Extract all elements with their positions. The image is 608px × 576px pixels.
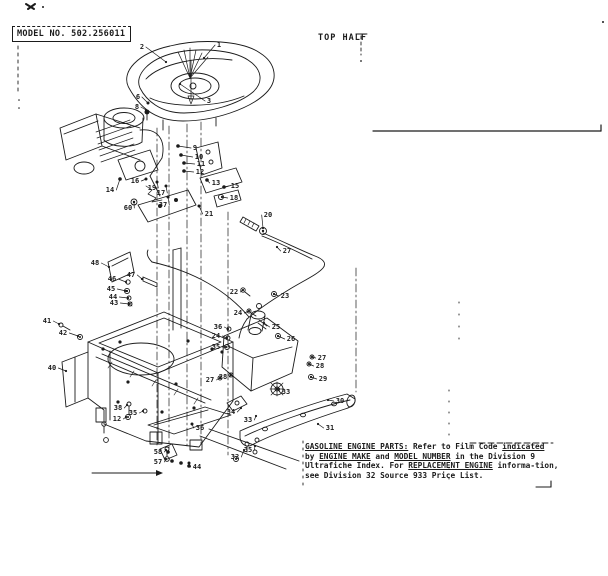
footer-text-segment: and [371, 452, 394, 461]
footer-text-segment: MODEL NUMBER [394, 452, 450, 461]
control-rod [147, 217, 324, 338]
callout-label: 25 [272, 323, 280, 331]
footer-text-segment: Refer to Film Code [408, 442, 502, 451]
callout-target-dot [165, 458, 167, 460]
callout-label: 31 [326, 424, 334, 432]
footer-text-segment: GASOLINE ENGINE PARTS: [305, 442, 408, 451]
callout-label: 35 [129, 409, 137, 417]
callout-target-dot [248, 310, 250, 312]
callout-target-dot [177, 145, 179, 147]
callout-target-dot [142, 410, 144, 412]
footer-text-segment: Ultrafiche Index. For [305, 461, 408, 470]
callout-target-dot [141, 278, 143, 280]
callout-label: 26 [287, 335, 295, 343]
callout-label: 33 [244, 416, 252, 424]
callout-label: 45 [107, 285, 115, 293]
callout-label: 27 [206, 376, 214, 384]
callout-label: 29 [319, 375, 327, 383]
callout-target-dot [242, 289, 244, 291]
footer-line: GASOLINE ENGINE PARTS: Refer to Film Cod… [305, 442, 559, 452]
callout-target-dot [125, 281, 127, 283]
callout-label: 2 [140, 43, 144, 51]
callout-label: 11 [197, 160, 205, 168]
callout-target-dot [273, 293, 275, 295]
callout-target-dot [255, 415, 257, 417]
callout-label: 22 [230, 288, 238, 296]
callout-label: 28 [316, 362, 324, 370]
callout-label: 32 [231, 453, 239, 461]
callout-target-dot [133, 201, 135, 203]
callout-target-dot [165, 449, 167, 451]
callout-target-dot [221, 196, 223, 198]
callout-leader [118, 279, 126, 282]
callout-label: 37 [159, 201, 167, 209]
callout-target-dot [156, 181, 158, 183]
callout-label: 36 [196, 424, 204, 432]
callout-target-dot [230, 374, 232, 376]
callout-target-dot [311, 356, 313, 358]
pan-hardware [108, 248, 181, 330]
callout-label: 8 [135, 103, 139, 111]
callout-target-dot [65, 370, 67, 372]
callout-label: 35 [212, 343, 220, 351]
footer-line: Ultrafiche Index. For REPLACEMENT ENGINE… [305, 461, 559, 471]
callout-label: 18 [230, 194, 238, 202]
exploded-parts-diagram: 1236891011121315181619173714602120272223… [0, 0, 608, 576]
callout-label: 46 [108, 275, 116, 283]
footer-line: see Division 32 Source 933 Price List. [305, 471, 559, 481]
callout-target-dot [223, 186, 225, 188]
callout-target-dot [191, 423, 193, 425]
callout-target-dot [128, 303, 130, 305]
callout-target-dot [225, 346, 227, 348]
footer-text-segment: see Division 32 Source 933 Price List. [305, 471, 483, 480]
callout-target-dot [119, 178, 121, 180]
callout-label: 20 [264, 211, 272, 219]
callout-label: 58 [154, 448, 162, 456]
callout-label: 12 [196, 168, 204, 176]
callout-label: 9 [193, 144, 197, 152]
footer-text-segment: informa-tion, [493, 461, 559, 470]
callout-label: 13 [212, 179, 220, 187]
callout-label: 19 [148, 184, 156, 192]
callout-label: 3 [207, 97, 211, 105]
callout-label: 43 [110, 299, 118, 307]
callout-target-dot [179, 83, 181, 85]
callout-target-dot [145, 178, 147, 180]
callout-target-dot [58, 323, 60, 325]
callout-target-dot [262, 227, 264, 229]
callout-label: 44 [193, 463, 201, 471]
callout-target-dot [145, 109, 147, 111]
callout-target-dot [165, 185, 167, 187]
callout-label: 24 [212, 332, 220, 340]
engine-cover [127, 42, 274, 130]
callout-label: 48 [91, 259, 99, 267]
callout-label: 6 [136, 93, 140, 101]
callout-leader [184, 163, 195, 164]
callout-label: 12 [113, 415, 121, 423]
footer-text-segment: indicated [502, 442, 544, 451]
footer-note: GASOLINE ENGINE PARTS: Refer to Film Cod… [305, 442, 559, 480]
callout-target-dot [276, 246, 278, 248]
callout-label: 21 [205, 210, 213, 218]
callout-label: 41 [43, 317, 51, 325]
callout-target-dot [308, 363, 310, 365]
callout-target-dot [226, 337, 228, 339]
callout-label: 57 [154, 458, 162, 466]
callout-target-dot [327, 399, 329, 401]
callout-label: 38 [114, 404, 122, 412]
callout-label: 17 [157, 189, 165, 197]
callout-target-dot [203, 57, 205, 59]
callout-leader [180, 84, 205, 101]
callout-target-dot [125, 416, 127, 418]
callout-label: 24 [234, 309, 242, 317]
callout-target-dot [317, 423, 319, 425]
callout-target-dot [278, 388, 280, 390]
callout-leader [178, 146, 191, 148]
callout-target-dot [206, 179, 208, 181]
callout-label: 40 [48, 364, 56, 372]
callout-target-dot [167, 196, 169, 198]
footer-text-segment: REPLACEMENT ENGINE [408, 461, 493, 470]
cover-spring [178, 48, 208, 104]
callout-target-dot [188, 462, 190, 464]
callout-leader [116, 179, 120, 190]
callout-leader [204, 45, 215, 58]
callout-target-dot [183, 170, 185, 172]
callout-target-dot [108, 266, 110, 268]
callout-label: 27 [283, 247, 291, 255]
footer-text-segment: in the Division 9 [451, 452, 536, 461]
callout-label: 60 [124, 204, 132, 212]
callout-target-dot [310, 376, 312, 378]
callout-target-dot [147, 102, 149, 104]
callout-target-dot [165, 61, 167, 63]
footer-line: by ENGINE MAKE and MODEL NUMBER in the D… [305, 452, 559, 462]
callout-label: 36 [214, 323, 222, 331]
callout-target-dot [227, 328, 229, 330]
callout-target-dot [126, 404, 128, 406]
callout-target-dot [77, 335, 79, 337]
callout-label: 47 [127, 271, 135, 279]
callout-target-dot [183, 162, 185, 164]
callout-leader [101, 263, 109, 267]
callout-label: 42 [59, 329, 67, 337]
callout-target-dot [263, 322, 265, 324]
callout-label: 14 [106, 186, 114, 194]
assembly-center-lines [157, 122, 356, 455]
callout-label: 35 [244, 446, 252, 454]
footer-text-segment: by [305, 452, 319, 461]
callout-label: 30 [336, 397, 344, 405]
parts-manual-page: MODEL NO. 502.256011 TOP HALF [0, 0, 608, 576]
callout-label: 23 [281, 292, 289, 300]
callout-target-dot [240, 407, 242, 409]
callout-leader [119, 297, 128, 298]
callout-target-dot [180, 154, 182, 156]
callout-label: 15 [231, 182, 239, 190]
callout-label: 16 [131, 177, 139, 185]
callout-target-dot [277, 335, 279, 337]
callout-target-dot [254, 445, 256, 447]
callout-label: 33 [282, 388, 290, 396]
callout-leader [120, 303, 129, 304]
callout-leader [69, 333, 78, 336]
callout-target-dot [125, 290, 127, 292]
callout-label: 1 [217, 41, 221, 49]
callout-label: 34 [227, 408, 235, 416]
callout-target-dot [198, 205, 200, 207]
footer-text-segment: ENGINE MAKE [319, 452, 371, 461]
callout-target-dot [127, 297, 129, 299]
callout-label: 28 [219, 373, 227, 381]
callout-label: 27 [318, 354, 326, 362]
